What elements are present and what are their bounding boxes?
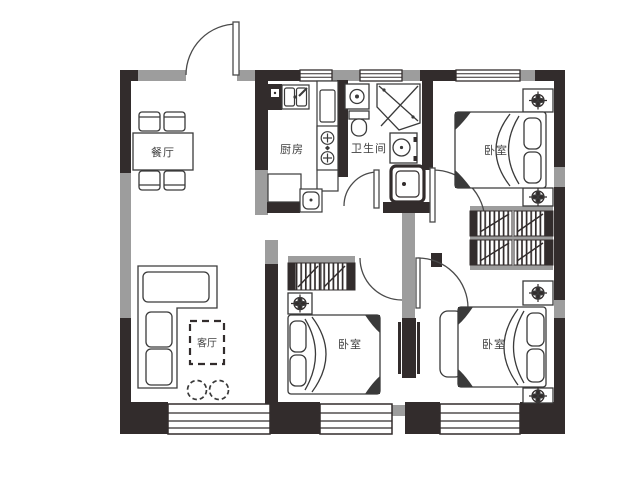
floorplan-image: 餐厅 厨房 卫生间 卧室 客厅 卧室 卧室	[0, 0, 622, 483]
room-label-bedroom-right: 卧室	[482, 336, 506, 352]
room-label-living: 客厅	[197, 335, 217, 350]
bedroom-mid-door	[360, 258, 402, 300]
window-bedroom-mid-bottom	[320, 404, 392, 434]
window-living-bottom	[168, 404, 270, 434]
washbasin-icon	[390, 133, 417, 163]
dining-chair	[139, 112, 160, 131]
shower-icon	[377, 84, 420, 130]
entrance-door	[186, 22, 239, 75]
toilet-icon	[349, 111, 369, 136]
dining-chair	[164, 112, 185, 131]
window-kitchen-top	[300, 70, 332, 81]
window-bathroom-top	[360, 70, 402, 81]
floorplan-svg	[0, 0, 622, 483]
bedroom-mid-furniture	[288, 293, 380, 394]
bathroom-door	[344, 170, 379, 208]
living-furniture	[138, 266, 229, 400]
window-bedroom-top	[456, 70, 520, 81]
room-label-bedroom-top: 卧室	[484, 142, 508, 158]
window-bedroom-right-bottom	[440, 404, 520, 434]
pouf	[210, 381, 229, 400]
room-label-dining: 餐厅	[151, 144, 175, 160]
room-label-bedroom-mid: 卧室	[338, 336, 362, 352]
kitchen-sink-icon	[282, 85, 309, 109]
room-label-bathroom: 卫生间	[351, 140, 387, 156]
wardrobe-row-1	[470, 211, 553, 236]
dining-chair	[164, 171, 185, 190]
pouf	[188, 381, 207, 400]
dining-chair	[139, 171, 160, 190]
wardrobe-bedroom-mid	[288, 263, 355, 290]
mop-basin-icon	[391, 166, 424, 202]
stove-icon	[317, 126, 338, 170]
room-label-kitchen: 厨房	[280, 141, 304, 157]
wardrobe-row-2	[470, 240, 553, 265]
washing-machine-icon	[345, 84, 369, 109]
